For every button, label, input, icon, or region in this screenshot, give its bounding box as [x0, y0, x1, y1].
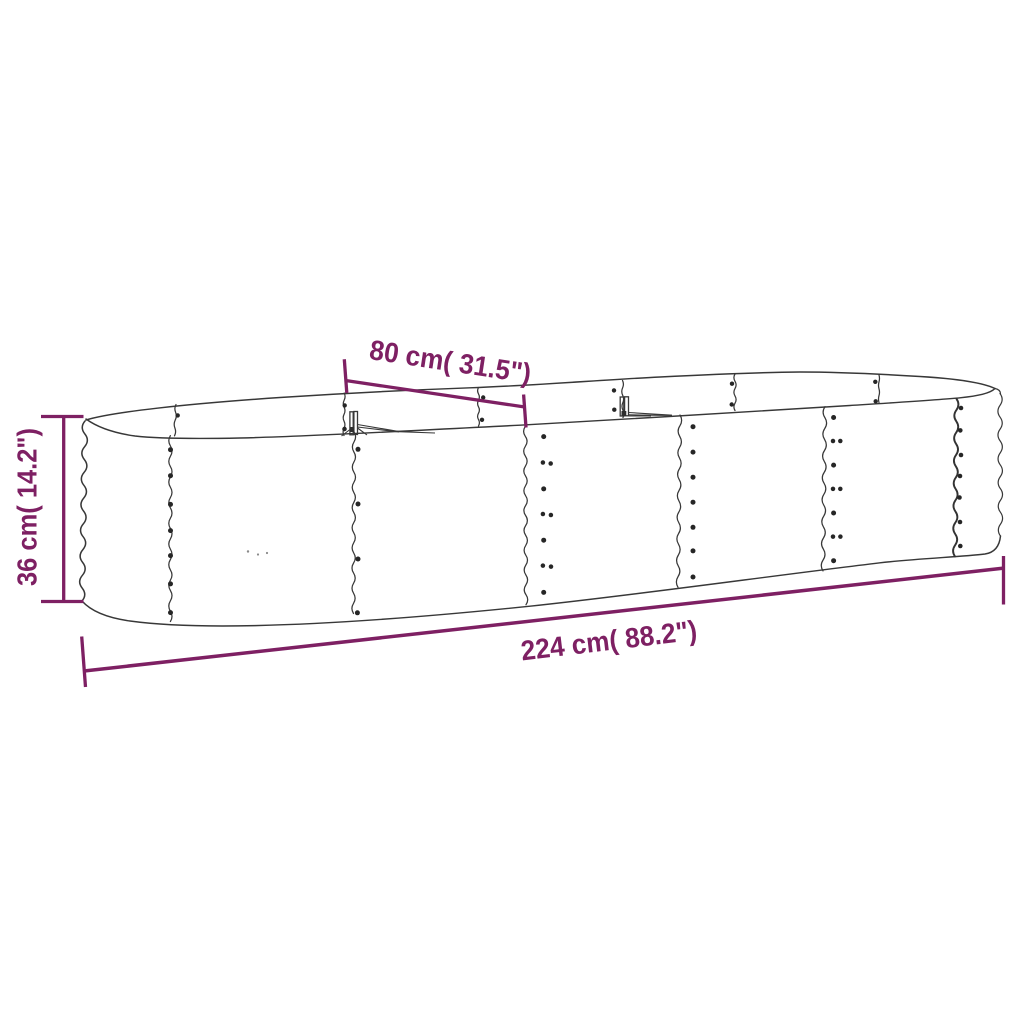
svg-text:36 cm( 14.2"): 36 cm( 14.2")	[12, 428, 43, 586]
